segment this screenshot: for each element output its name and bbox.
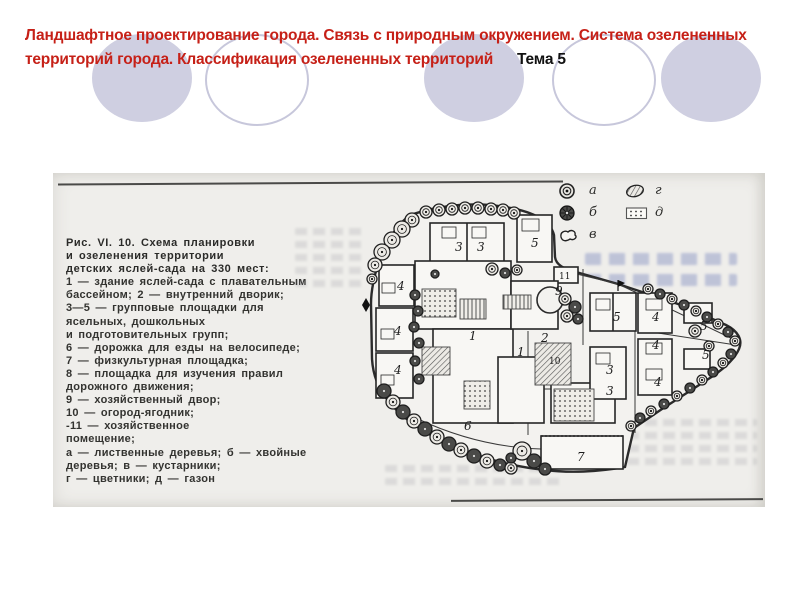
- conifer-tree-icon: [414, 338, 424, 348]
- deciduous-tree-icon: [626, 421, 636, 431]
- deciduous-tree-icon: [512, 265, 522, 275]
- bleedthrough-text-marks: [295, 228, 363, 293]
- conifer-tree-icon: [506, 453, 516, 463]
- deciduous-tree-icon: [459, 202, 471, 214]
- plan-label-10: 10: [549, 357, 561, 367]
- plan-label-11: 11: [559, 272, 570, 282]
- plan-label-4: 4: [396, 279, 405, 293]
- caption-line: деревья; в — кустарники;: [66, 460, 368, 473]
- deciduous-tree-icon: [367, 274, 377, 284]
- caption-line: ясельных, дошкольных: [66, 316, 368, 329]
- caption-line: а — лиственные деревья; б — хвойные: [66, 447, 368, 460]
- caption-line: и подготовительных групп;: [66, 329, 368, 342]
- deciduous-tree-icon: [697, 375, 707, 385]
- deciduous-tree-icon: [480, 454, 494, 468]
- conifer-tree-icon: [573, 314, 583, 324]
- plan-label-5: 5: [531, 236, 539, 250]
- deciduous-tree-icon: [368, 258, 382, 272]
- plan-label-5: 5: [613, 310, 621, 324]
- deciduous-tree-icon: [691, 306, 701, 316]
- conifer-tree-icon: [635, 413, 645, 423]
- plan-label-4: 4: [651, 338, 660, 352]
- caption-line: 3—5 — групповые площадки для: [66, 302, 368, 315]
- deciduous-tree-icon: [713, 319, 723, 329]
- conifer-tree-icon: [418, 422, 432, 436]
- deciduous-tree-icon: [508, 207, 520, 219]
- deciduous-tree-icon: [446, 203, 458, 215]
- conifer-tree-icon: [410, 356, 420, 366]
- site-plan: 335444119115454533410267: [356, 179, 760, 507]
- figure-scan: Рис. VI. 10. Схема планировкии озеленени…: [53, 173, 765, 507]
- conifer-tree-icon: [410, 290, 420, 300]
- slide: Ландшафтное проектирование города. Связь…: [0, 0, 800, 600]
- plan-label-7: 7: [577, 450, 585, 464]
- deciduous-tree-icon: [730, 336, 740, 346]
- deciduous-tree-icon: [667, 294, 677, 304]
- plan-label-4: 4: [393, 363, 402, 377]
- plan-label-3: 3: [606, 363, 614, 377]
- deciduous-tree-icon: [561, 310, 573, 322]
- plan-label-3: 3: [477, 240, 485, 254]
- caption-line: 9 — хозяйственный двор;: [66, 394, 368, 407]
- title-line-2-red: территорий города. Классификация озелене…: [25, 51, 493, 68]
- deciduous-tree-icon: [433, 204, 445, 216]
- conifer-tree-icon: [527, 454, 541, 468]
- slide-title: Ландшафтное проектирование города. Связь…: [25, 24, 760, 72]
- plan-label-5: 5: [700, 319, 708, 333]
- plan-label-2: 2: [540, 331, 549, 345]
- plan-label-6: 6: [464, 419, 472, 433]
- plan-label-3: 3: [455, 240, 463, 254]
- caption-line: 10 — огород-ягодник;: [66, 407, 368, 420]
- caption-line: -11 — хозяйственное: [66, 420, 368, 433]
- deciduous-tree-icon: [505, 462, 517, 474]
- deciduous-tree-icon: [672, 391, 682, 401]
- deciduous-tree-icon: [646, 406, 656, 416]
- plan-label-3: 3: [606, 384, 614, 398]
- deciduous-tree-icon: [485, 203, 497, 215]
- plan-label-5: 5: [702, 348, 710, 362]
- caption-line: помещение;: [66, 433, 368, 446]
- conifer-tree-icon: [413, 306, 423, 316]
- caption-line: 6 — дорожка для езды на велосипеде;: [66, 342, 368, 355]
- plan-label-9: 9: [555, 284, 563, 298]
- conifer-tree-icon: [655, 289, 665, 299]
- plan-label-4: 4: [653, 375, 662, 389]
- caption-line: 7 — физкультурная площадка;: [66, 355, 368, 368]
- deciduous-tree-icon: [718, 358, 728, 368]
- deciduous-tree-icon: [643, 284, 653, 294]
- conifer-tree-icon: [708, 367, 718, 377]
- entrance-diamond-marker: [362, 298, 370, 312]
- plan-label-4: 4: [651, 310, 660, 324]
- title-line-1: Ландшафтное проектирование города. Связь…: [25, 24, 760, 48]
- conifer-tree-icon: [723, 327, 733, 337]
- conifer-tree-icon: [409, 322, 419, 332]
- conifer-tree-icon: [431, 270, 439, 278]
- plan-label-1: 1: [517, 345, 525, 359]
- conifer-tree-icon: [679, 300, 689, 310]
- plan-label-4: 4: [393, 324, 402, 338]
- conifer-tree-icon: [685, 383, 695, 393]
- conifer-tree-icon: [467, 449, 481, 463]
- topic-label: Тема 5: [517, 51, 566, 68]
- conifer-tree-icon: [726, 349, 736, 359]
- conifer-tree-icon: [414, 374, 424, 384]
- conifer-tree-icon: [500, 268, 510, 278]
- deciduous-tree-icon: [454, 443, 468, 457]
- title-line-2: территорий города. Классификация озелене…: [25, 48, 760, 72]
- plan-label-1: 1: [469, 329, 477, 343]
- conifer-tree-icon: [494, 459, 506, 471]
- deciduous-tree-icon: [486, 263, 498, 275]
- conifer-tree-icon: [539, 463, 551, 475]
- deciduous-tree-icon: [472, 202, 484, 214]
- caption-line: г — цветники; д — газон: [66, 473, 368, 486]
- caption-line: дорожного движения;: [66, 381, 368, 394]
- deciduous-tree-icon: [420, 206, 432, 218]
- conifer-tree-icon: [659, 399, 669, 409]
- caption-line: 8 — площадка для изучения правил: [66, 368, 368, 381]
- deciduous-tree-icon: [497, 204, 509, 216]
